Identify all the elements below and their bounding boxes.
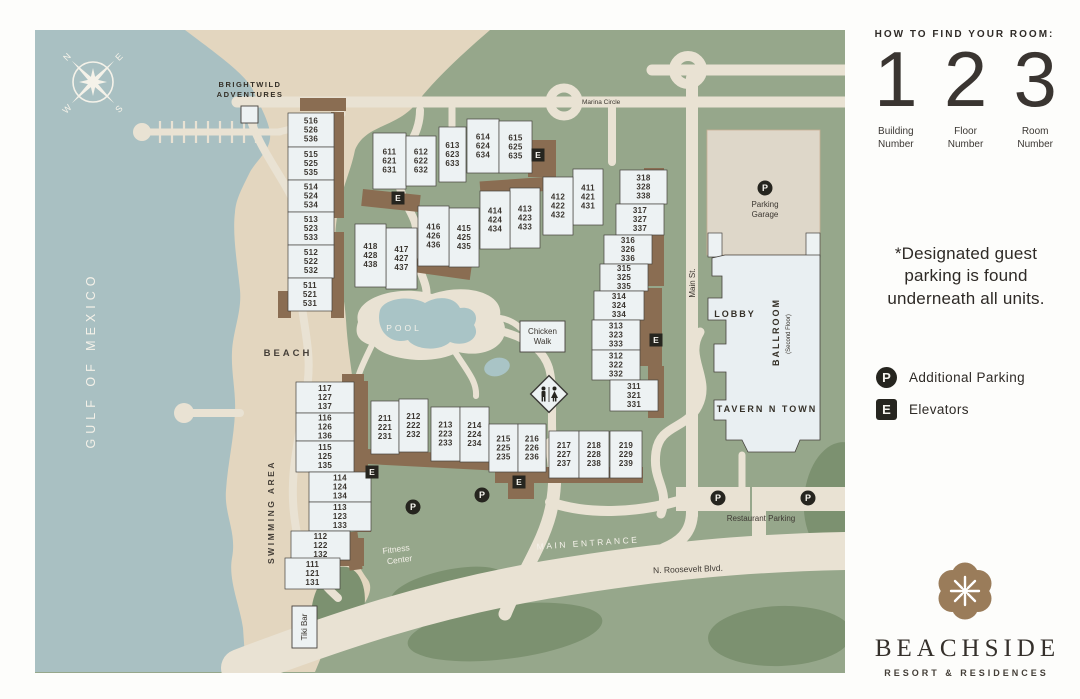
svg-text:218228238: 218228238 [587, 441, 601, 468]
building-411: 411421431 [573, 169, 603, 225]
building-217: 217227237 [549, 431, 579, 478]
building-413: 413423433 [510, 188, 540, 248]
step-digit-3: 3 [1013, 44, 1056, 116]
ballroom-sub-label: (Second Floor) [786, 314, 792, 354]
svg-text:P: P [410, 502, 416, 512]
parking-garage-label-2: Garage [752, 210, 779, 219]
step-label-3-line2: Number [1017, 139, 1053, 150]
svg-text:412422432: 412422432 [551, 193, 565, 220]
svg-text:P: P [715, 493, 721, 503]
step-label-2-line2: Number [948, 139, 984, 150]
building-315: 315325335 [600, 264, 648, 291]
building-112: 112122132 [291, 531, 350, 560]
tiki-bar-box: Tiki Bar [292, 606, 317, 648]
building-614: 614624634 [467, 119, 499, 173]
svg-text:P: P [805, 493, 811, 503]
building-116: 116126136 [296, 413, 354, 441]
building-318: 318328338 [620, 170, 667, 204]
legend-parking-label: Additional Parking [909, 370, 1025, 385]
svg-text:211221231: 211221231 [378, 414, 392, 441]
parking-badge: P [711, 491, 726, 506]
svg-text:415425435: 415425435 [457, 224, 471, 251]
building-113: 113123133 [309, 502, 371, 531]
svg-text:Walk: Walk [534, 337, 552, 346]
elevator-badge: E [392, 192, 405, 205]
room-number-steps: 1 Building Number 2 Floor Number 3 Room … [868, 44, 1063, 151]
parking-badge-icon: P [876, 367, 897, 388]
building-212: 212222232 [399, 399, 428, 452]
step-room: 3 Room Number [1007, 44, 1063, 151]
elevator-badge: E [650, 334, 663, 347]
svg-text:411421431: 411421431 [581, 184, 595, 211]
svg-text:613623633: 613623633 [445, 141, 459, 168]
svg-text:P: P [479, 490, 485, 500]
svg-text:E: E [369, 467, 375, 477]
svg-text:E: E [516, 477, 522, 487]
svg-text:113123133: 113123133 [333, 503, 347, 530]
building-417: 417427437 [386, 228, 417, 289]
svg-text:514524534: 514524534 [304, 183, 318, 210]
svg-text:413423433: 413423433 [518, 205, 532, 232]
step-label-3: Room Number [1017, 125, 1053, 151]
brightwild-kiosk [241, 106, 258, 123]
building-611: 611621631 [373, 133, 406, 189]
svg-text:E: E [653, 335, 659, 345]
svg-text:116126136: 116126136 [318, 414, 332, 441]
svg-text:614624634: 614624634 [476, 133, 490, 160]
svg-text:516526536: 516526536 [304, 117, 318, 144]
legend-additional-parking: P Additional Parking [876, 367, 1025, 388]
building-314: 314324334 [594, 291, 644, 320]
svg-text:513523533: 513523533 [304, 215, 318, 242]
resort-map-page: 5165265365155255355145245345135235335125… [0, 0, 1080, 699]
svg-text:114124134: 114124134 [333, 474, 347, 501]
step-label-1-line2: Number [878, 139, 914, 150]
chicken-walk-box: Chicken Walk [520, 321, 565, 352]
building-513: 513523533 [288, 212, 334, 245]
building-512: 512522532 [288, 245, 334, 278]
building-414: 414424434 [480, 191, 510, 249]
building-111: 111121131 [285, 558, 340, 589]
legend-elevators-label: Elevators [909, 402, 969, 417]
step-label-1: Building Number [878, 125, 914, 151]
building-311: 311321331 [610, 380, 658, 411]
building-515: 515525535 [288, 147, 334, 180]
building-415: 415425435 [449, 208, 479, 267]
elevator-badge: E [513, 476, 526, 489]
garage-stair-west [708, 233, 722, 257]
restaurant-parking-label: Restaurant Parking [727, 514, 795, 523]
svg-text:Chicken: Chicken [528, 327, 557, 336]
svg-text:111121131: 111121131 [305, 560, 319, 587]
svg-text:512522532: 512522532 [304, 248, 318, 275]
elevator-badge: E [366, 466, 379, 479]
svg-text:312322332: 312322332 [609, 352, 623, 379]
gulf-label: GULF OF MEXICO [84, 272, 98, 449]
legend: P Additional Parking E Elevators [876, 367, 1025, 420]
logo-name: BEACHSIDE [866, 635, 1069, 663]
step-digit-2: 2 [944, 44, 987, 116]
svg-text:418428438: 418428438 [363, 242, 377, 269]
building-218: 218228238 [579, 431, 609, 478]
step-label-3-line1: Room [1022, 126, 1049, 137]
garage-stair-east [806, 233, 820, 257]
tavern-label: TAVERN N TOWN [717, 404, 818, 414]
svg-text:311321331: 311321331 [627, 382, 641, 409]
building-213: 213223233 [431, 407, 460, 461]
svg-text:214224234: 214224234 [467, 421, 481, 448]
elevator-badge: E [532, 149, 545, 162]
svg-text:216226236: 216226236 [525, 435, 539, 462]
building-511: 511521531 [288, 278, 332, 311]
building-215: 215225235 [489, 424, 518, 472]
building-313: 313323333 [592, 320, 640, 350]
svg-text:315325335: 315325335 [617, 264, 631, 291]
parking-badge: P [801, 491, 816, 506]
building-211: 211221231 [371, 401, 399, 454]
svg-text:612622632: 612622632 [414, 148, 428, 175]
svg-text:E: E [535, 150, 541, 160]
building-115: 115125135 [296, 441, 354, 472]
step-digit-1: 1 [874, 44, 917, 116]
logo-tagline: RESORT & RESIDENCES [866, 668, 1067, 678]
svg-text:318328338: 318328338 [636, 174, 650, 201]
svg-text:515525535: 515525535 [304, 150, 318, 177]
svg-text:414424434: 414424434 [488, 207, 502, 234]
building-219: 219229239 [610, 431, 642, 478]
parking-badge: P [758, 181, 773, 196]
building-214: 214224234 [460, 407, 489, 462]
svg-text:313323333: 313323333 [609, 322, 623, 349]
building-418: 418428438 [355, 224, 386, 287]
step-label-1-line1: Building [878, 126, 914, 137]
parking-badge: P [475, 488, 490, 503]
building-316: 316326336 [604, 235, 652, 264]
step-building: 1 Building Number [868, 44, 924, 151]
svg-text:117127137: 117127137 [318, 384, 332, 411]
elevator-badge-icon: E [876, 399, 897, 420]
step-label-2-line1: Floor [954, 126, 977, 137]
brightwild-label-2: ADVENTURES [217, 90, 284, 99]
beach-label: BEACH [264, 348, 313, 359]
building-613: 613623633 [439, 127, 466, 182]
svg-text:316326336: 316326336 [621, 236, 635, 263]
step-label-2: Floor Number [948, 125, 984, 151]
building-514: 514524534 [288, 180, 334, 212]
svg-text:112122132: 112122132 [313, 532, 327, 559]
lobby-label: LOBBY [714, 309, 756, 319]
svg-text:213223233: 213223233 [438, 421, 452, 448]
building-615: 615625635 [499, 121, 532, 173]
main-st-label: Main St. [688, 268, 697, 297]
marina-circle-label: Marina Circle [582, 99, 621, 106]
svg-text:217227237: 217227237 [557, 441, 571, 468]
svg-text:314324334: 314324334 [612, 292, 626, 319]
svg-text:P: P [762, 183, 768, 193]
building-516: 516526536 [288, 113, 334, 147]
flower-logo-icon [930, 556, 1000, 626]
legend-elevators: E Elevators [876, 399, 1025, 420]
svg-text:215225235: 215225235 [496, 435, 510, 462]
svg-text:Tiki Bar: Tiki Bar [300, 613, 309, 640]
svg-text:511521531: 511521531 [303, 281, 317, 308]
building-117: 117127137 [296, 382, 354, 413]
svg-text:219229239: 219229239 [619, 441, 633, 468]
building-114: 114124134 [309, 472, 371, 502]
svg-text:615625635: 615625635 [508, 134, 522, 161]
svg-text:317327337: 317327337 [633, 206, 647, 233]
building-216: 216226236 [518, 424, 546, 472]
building-416: 416426436 [418, 206, 449, 266]
svg-text:417427437: 417427437 [394, 245, 408, 272]
building-317: 317327337 [616, 204, 664, 235]
svg-text:115125135: 115125135 [318, 443, 332, 470]
swimming-area-label: SWIMMING AREA [266, 460, 276, 564]
svg-text:611621631: 611621631 [382, 148, 396, 175]
resort-map: 5165265365155255355145245345135235335125… [35, 30, 845, 673]
parking-garage-label-1: Parking [751, 200, 778, 209]
building-412: 412422432 [543, 177, 573, 235]
parking-note: *Designated guest parking is found under… [872, 243, 1060, 310]
pool-label: POOL [386, 323, 422, 333]
svg-text:E: E [395, 193, 401, 203]
building-612: 612622632 [406, 136, 436, 186]
building-312: 312322332 [592, 350, 640, 380]
ballroom-label: BALLROOM [771, 298, 781, 366]
step-floor: 2 Floor Number [938, 44, 994, 151]
brightwild-label-1: BRIGHTWILD [219, 80, 282, 89]
svg-text:212222232: 212222232 [406, 412, 420, 439]
beachside-logo: BEACHSIDE RESORT & RESIDENCES [866, 556, 1064, 678]
parking-badge: P [406, 500, 421, 515]
svg-text:416426436: 416426436 [426, 223, 440, 250]
